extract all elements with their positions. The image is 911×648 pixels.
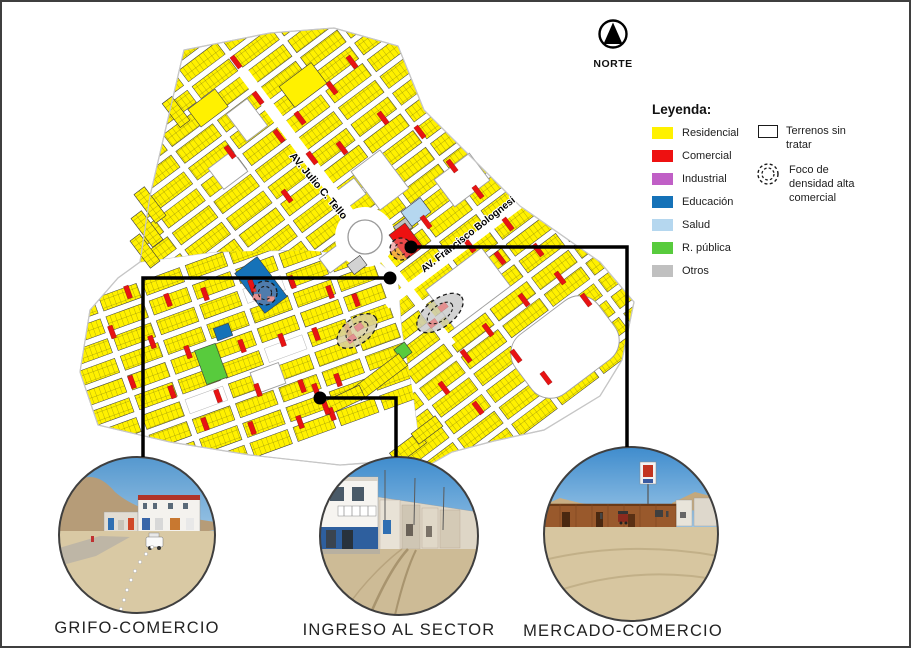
photo-grifo	[59, 457, 215, 615]
legend-extras: Terrenos sin tratar Foco de densidad alt…	[758, 124, 878, 215]
untreated-land-icon	[758, 125, 778, 138]
legend-item-rpublica: R. pública	[652, 241, 902, 254]
density-focus-icon	[755, 161, 781, 206]
educacion-swatch	[652, 196, 673, 208]
figure-page: AV. Julio C. Tello AV. Francisco Bologne…	[0, 0, 911, 648]
salud-swatch	[652, 219, 673, 231]
residencial-swatch	[652, 127, 673, 139]
caption-grifo: GRIFO-COMERCIO	[22, 619, 252, 638]
callout-anchor-dot	[405, 241, 418, 254]
legend-item-foco: Foco de densidad alta comercial	[758, 163, 878, 206]
legend-item-salud: Salud	[652, 218, 902, 231]
legend-item-otros: Otros	[652, 264, 902, 277]
comercial-swatch	[652, 150, 673, 162]
callout-anchor-dot	[314, 392, 327, 405]
density-focus-marker	[253, 281, 277, 305]
north-indicator: NORTE	[590, 18, 636, 70]
north-arrow-icon	[596, 18, 630, 52]
legend-title: Leyenda:	[652, 102, 902, 117]
caption-ingreso: INGRESO AL SECTOR	[284, 621, 514, 640]
photo-callouts-layer	[59, 447, 718, 623]
callout-anchor-dot	[384, 272, 397, 285]
rpublica-swatch	[652, 242, 673, 254]
industrial-swatch	[652, 173, 673, 185]
caption-mercado: MERCADO-COMERCIO	[508, 622, 738, 641]
otros-swatch	[652, 265, 673, 277]
land-use-map: AV. Julio C. Tello AV. Francisco Bologne…	[0, 0, 911, 648]
north-label: NORTE	[590, 58, 636, 70]
legend-item-terrenos: Terrenos sin tratar	[758, 124, 878, 153]
photo-ingreso	[320, 457, 478, 617]
photo-mercado	[544, 447, 718, 623]
